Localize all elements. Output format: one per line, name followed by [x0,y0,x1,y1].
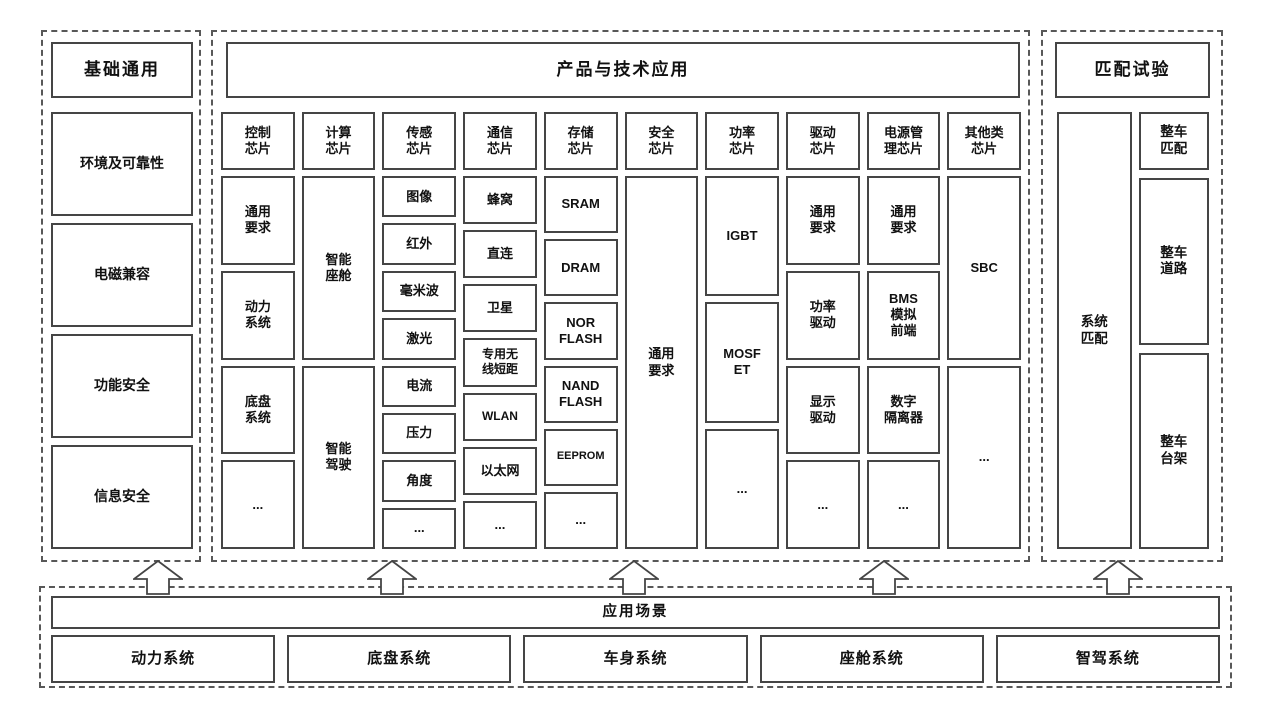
chip-item: 图像 [382,176,456,217]
column-items: 通用 要求 [625,176,699,549]
matching-body: 系统 匹配 整车 匹配 整车 道路 整车 台架 [1057,112,1209,549]
chip-item: EEPROM [544,429,618,486]
column-header: 其他类 芯片 [947,112,1021,170]
matching-item-vehicle-match: 整车 匹配 [1139,112,1210,170]
chip-item-ellipsis: ... [382,508,456,549]
products-section: 产品与技术应用 控制 芯片 通用 要求 动力 系统 底盘 系统 ... 计算 芯… [211,30,1030,562]
chip-item: 智能 驾驶 [302,366,376,550]
chip-item: 显示 驱动 [786,366,860,455]
scenarios-item-list: 动力系统 底盘系统 车身系统 座舱系统 智驾系统 [51,635,1220,683]
column-header: 存储 芯片 [544,112,618,170]
chip-item: 通用 要求 [786,176,860,265]
chip-item: 数字 隔离器 [867,366,941,455]
column-items: SBC ... [947,176,1021,549]
chip-item: DRAM [544,239,618,296]
chip-item: MOSF ET [705,302,779,422]
matching-item-vehicle-road: 整车 道路 [1139,178,1210,345]
column-items: 通用 要求 BMS 模拟 前端 数字 隔离器 ... [867,176,941,549]
chip-item: 智能 座舱 [302,176,376,360]
up-arrow-icon [367,560,417,595]
chip-item: 压力 [382,413,456,454]
column-header: 传感 芯片 [382,112,456,170]
column-items: 图像 红外 毫米波 激光 电流 压力 角度 ... [382,176,456,549]
chip-column-storage: 存储 芯片 SRAM DRAM NOR FLASH NAND FLASH EEP… [544,112,618,549]
base-item-environment-reliability: 环境及可靠性 [51,112,193,216]
up-arrow-icon [609,560,659,595]
scenario-item-body: 车身系统 [523,635,747,683]
column-items: SRAM DRAM NOR FLASH NAND FLASH EEPROM ..… [544,176,618,549]
scenario-item-chassis: 底盘系统 [287,635,511,683]
chip-item: NAND FLASH [544,366,618,423]
chip-item: 底盘 系统 [221,366,295,455]
up-arrow-icon [133,560,183,595]
chip-columns: 控制 芯片 通用 要求 动力 系统 底盘 系统 ... 计算 芯片 智能 座舱 … [221,112,1021,549]
base-item-information-security: 信息安全 [51,445,193,549]
chip-item: 蜂窝 [463,176,537,224]
chip-column-other: 其他类 芯片 SBC ... [947,112,1021,549]
chip-item-ellipsis: ... [947,366,1021,550]
matching-item-system: 系统 匹配 [1057,112,1132,549]
chip-item: 通用 要求 [625,176,699,549]
base-section-title: 基础通用 [51,42,193,98]
column-items: IGBT MOSF ET ... [705,176,779,549]
chip-item-ellipsis: ... [221,460,295,549]
matching-item-vehicle-bench: 整车 台架 [1139,353,1210,549]
chip-item: 激光 [382,318,456,359]
chip-column-compute: 计算 芯片 智能 座舱 智能 驾驶 [302,112,376,549]
column-items: 智能 座舱 智能 驾驶 [302,176,376,549]
chip-item: 专用无 线短距 [463,338,537,386]
chip-item: BMS 模拟 前端 [867,271,941,360]
chip-column-power-management: 电源管 理芯片 通用 要求 BMS 模拟 前端 数字 隔离器 ... [867,112,941,549]
base-section: 基础通用 环境及可靠性 电磁兼容 功能安全 信息安全 [41,30,201,562]
column-header: 电源管 理芯片 [867,112,941,170]
base-item-list: 环境及可靠性 电磁兼容 功能安全 信息安全 [51,112,193,549]
chip-item: WLAN [463,393,537,441]
chip-item: IGBT [705,176,779,296]
matching-vehicle-items: 整车 匹配 整车 道路 整车 台架 [1139,112,1210,549]
chip-item: 动力 系统 [221,271,295,360]
up-arrow-icon [1093,560,1143,595]
chip-item-ellipsis: ... [705,429,779,549]
chip-item: 电流 [382,366,456,407]
chip-item: SBC [947,176,1021,360]
products-section-title: 产品与技术应用 [226,42,1020,98]
chip-item: SRAM [544,176,618,233]
chip-column-driver: 驱动 芯片 通用 要求 功率 驱动 显示 驱动 ... [786,112,860,549]
chip-item-ellipsis: ... [786,460,860,549]
chip-column-power: 功率 芯片 IGBT MOSF ET ... [705,112,779,549]
chip-item-ellipsis: ... [867,460,941,549]
base-item-functional-safety: 功能安全 [51,334,193,438]
column-header: 功率 芯片 [705,112,779,170]
column-items: 蜂窝 直连 卫星 专用无 线短距 WLAN 以太网 ... [463,176,537,549]
chip-column-sensor: 传感 芯片 图像 红外 毫米波 激光 电流 压力 角度 ... [382,112,456,549]
column-items: 通用 要求 动力 系统 底盘 系统 ... [221,176,295,549]
column-items: 通用 要求 功率 驱动 显示 驱动 ... [786,176,860,549]
scenarios-section: 应用场景 动力系统 底盘系统 车身系统 座舱系统 智驾系统 [39,586,1232,688]
column-header: 驱动 芯片 [786,112,860,170]
chip-item: 功率 驱动 [786,271,860,360]
chip-column-security: 安全 芯片 通用 要求 [625,112,699,549]
chip-item-ellipsis: ... [544,492,618,549]
scenario-item-powertrain: 动力系统 [51,635,275,683]
chip-item: 通用 要求 [867,176,941,265]
base-item-emc: 电磁兼容 [51,223,193,327]
matching-section: 匹配试验 系统 匹配 整车 匹配 整车 道路 整车 台架 [1041,30,1223,562]
chip-column-communication: 通信 芯片 蜂窝 直连 卫星 专用无 线短距 WLAN 以太网 ... [463,112,537,549]
chip-item: 以太网 [463,447,537,495]
chip-item: 直连 [463,230,537,278]
chip-item-ellipsis: ... [463,501,537,549]
scenario-item-cockpit: 座舱系统 [760,635,984,683]
chip-item: NOR FLASH [544,302,618,359]
column-header: 安全 芯片 [625,112,699,170]
scenario-item-smart-driving: 智驾系统 [996,635,1220,683]
column-header: 通信 芯片 [463,112,537,170]
chip-item: 通用 要求 [221,176,295,265]
chip-item: 卫星 [463,284,537,332]
diagram-canvas: 基础通用 环境及可靠性 电磁兼容 功能安全 信息安全 产品与技术应用 控制 芯片… [0,0,1280,720]
column-header: 控制 芯片 [221,112,295,170]
scenarios-title: 应用场景 [51,596,1220,629]
chip-item: 角度 [382,460,456,501]
chip-item: 毫米波 [382,271,456,312]
chip-item: 红外 [382,223,456,264]
column-header: 计算 芯片 [302,112,376,170]
matching-section-title: 匹配试验 [1055,42,1210,98]
chip-column-control: 控制 芯片 通用 要求 动力 系统 底盘 系统 ... [221,112,295,549]
up-arrow-icon [859,560,909,595]
